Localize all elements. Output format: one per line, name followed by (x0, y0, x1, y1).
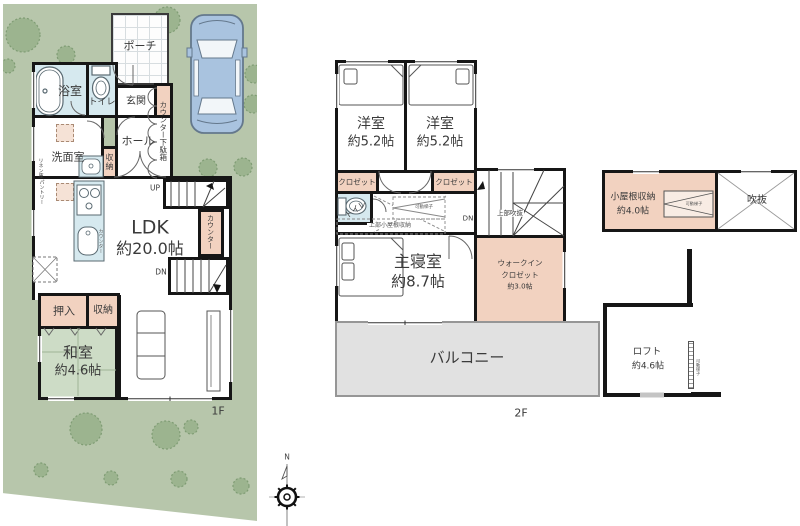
label-master-size: 約8.7帖 (391, 275, 445, 290)
label-washitsu-size: 約4.6帖 (55, 365, 102, 378)
label-linen: リネン庫 (38, 158, 43, 178)
label-hall-storage: 収納 (105, 153, 113, 171)
loft-wall-stub (687, 249, 692, 305)
washer-space-box (56, 124, 74, 142)
room-walk-in-closet (474, 235, 566, 324)
kitchen-utility-box (56, 183, 74, 201)
label-hall: ホール (122, 136, 155, 147)
label-attic-name: 小屋根収納 (610, 194, 655, 203)
room-toilet-1f (86, 62, 118, 118)
label-compass-north: N (284, 453, 290, 461)
stairs-up-block (163, 179, 229, 209)
label-wic-1: ウォークイン (498, 259, 543, 267)
label-wic-2: クロゼット (501, 271, 539, 279)
label-entrance: 玄関 (126, 97, 146, 107)
label-porch: ポーチ (124, 41, 157, 52)
label-dn-1f: DN (155, 268, 166, 276)
label-wic-3: 約3.0帖 (507, 284, 532, 291)
loft-wall-extension (691, 392, 721, 397)
label-kitchen-counter: カウンター (98, 229, 103, 254)
label-oshiire: 押入 (53, 306, 75, 317)
label-stair-counter: カウンター (207, 215, 214, 250)
label-toilet-1f: トイレ (88, 99, 115, 108)
label-dn-2f: DN (463, 216, 474, 223)
label-ldk-name: LDK (131, 219, 169, 238)
label-washitsu-name: 和室 (63, 346, 93, 361)
stairs-2f-block (474, 168, 566, 238)
label-floor-2f: 2F (514, 408, 527, 419)
label-bath: 浴室 (58, 85, 82, 97)
label-bedroom1-name: 洋室 (357, 117, 385, 131)
stairs-dn-block (168, 257, 229, 295)
label-ldk-size: 約20.0帖 (116, 241, 184, 257)
label-washroom: 洗面室 (52, 152, 85, 163)
label-attic-size: 約4.0帖 (617, 208, 649, 217)
label-floor-1f: 1F (211, 406, 224, 417)
room-ldk-lower (118, 295, 232, 400)
label-washitsu-storage: 収納 (93, 306, 113, 316)
label-pantry: パントリー (39, 180, 44, 205)
label-closet-2: クロゼット (435, 178, 473, 186)
label-loft-ladder: 可動梯子 (696, 359, 700, 376)
loft-ladder-hatch (688, 341, 694, 389)
compass (269, 464, 305, 526)
label-loft-size: 約4.6帖 (632, 363, 664, 372)
label-closet-1: クロゼット (338, 178, 376, 186)
label-void-above: 上部吹抜 (496, 210, 524, 217)
label-loft-name: ロフト (633, 347, 662, 357)
label-master-name: 主寝室 (394, 254, 442, 270)
floor-plan-canvas: ポーチ 浴室 トイレ 玄関 カウンター下駄箱 ホール 洗面室 収納 リネン庫 パ… (0, 0, 800, 526)
label-shoe-cabinet: カウンター下駄箱 (159, 101, 167, 161)
label-balcony: バルコニー (430, 351, 505, 366)
label-attic-ladder: 可動梯子 (686, 202, 703, 206)
label-attic-above: 上部小屋根収納 (367, 223, 413, 229)
label-bedroom1-size: 約5.2帖 (348, 136, 395, 149)
label-ladder-2f: 可動梯子 (415, 206, 433, 211)
label-up: UP (150, 184, 160, 192)
label-void: 吹抜 (747, 196, 767, 206)
label-bedroom2-size: 約5.2帖 (417, 136, 464, 149)
label-bedroom2-name: 洋室 (426, 117, 454, 131)
